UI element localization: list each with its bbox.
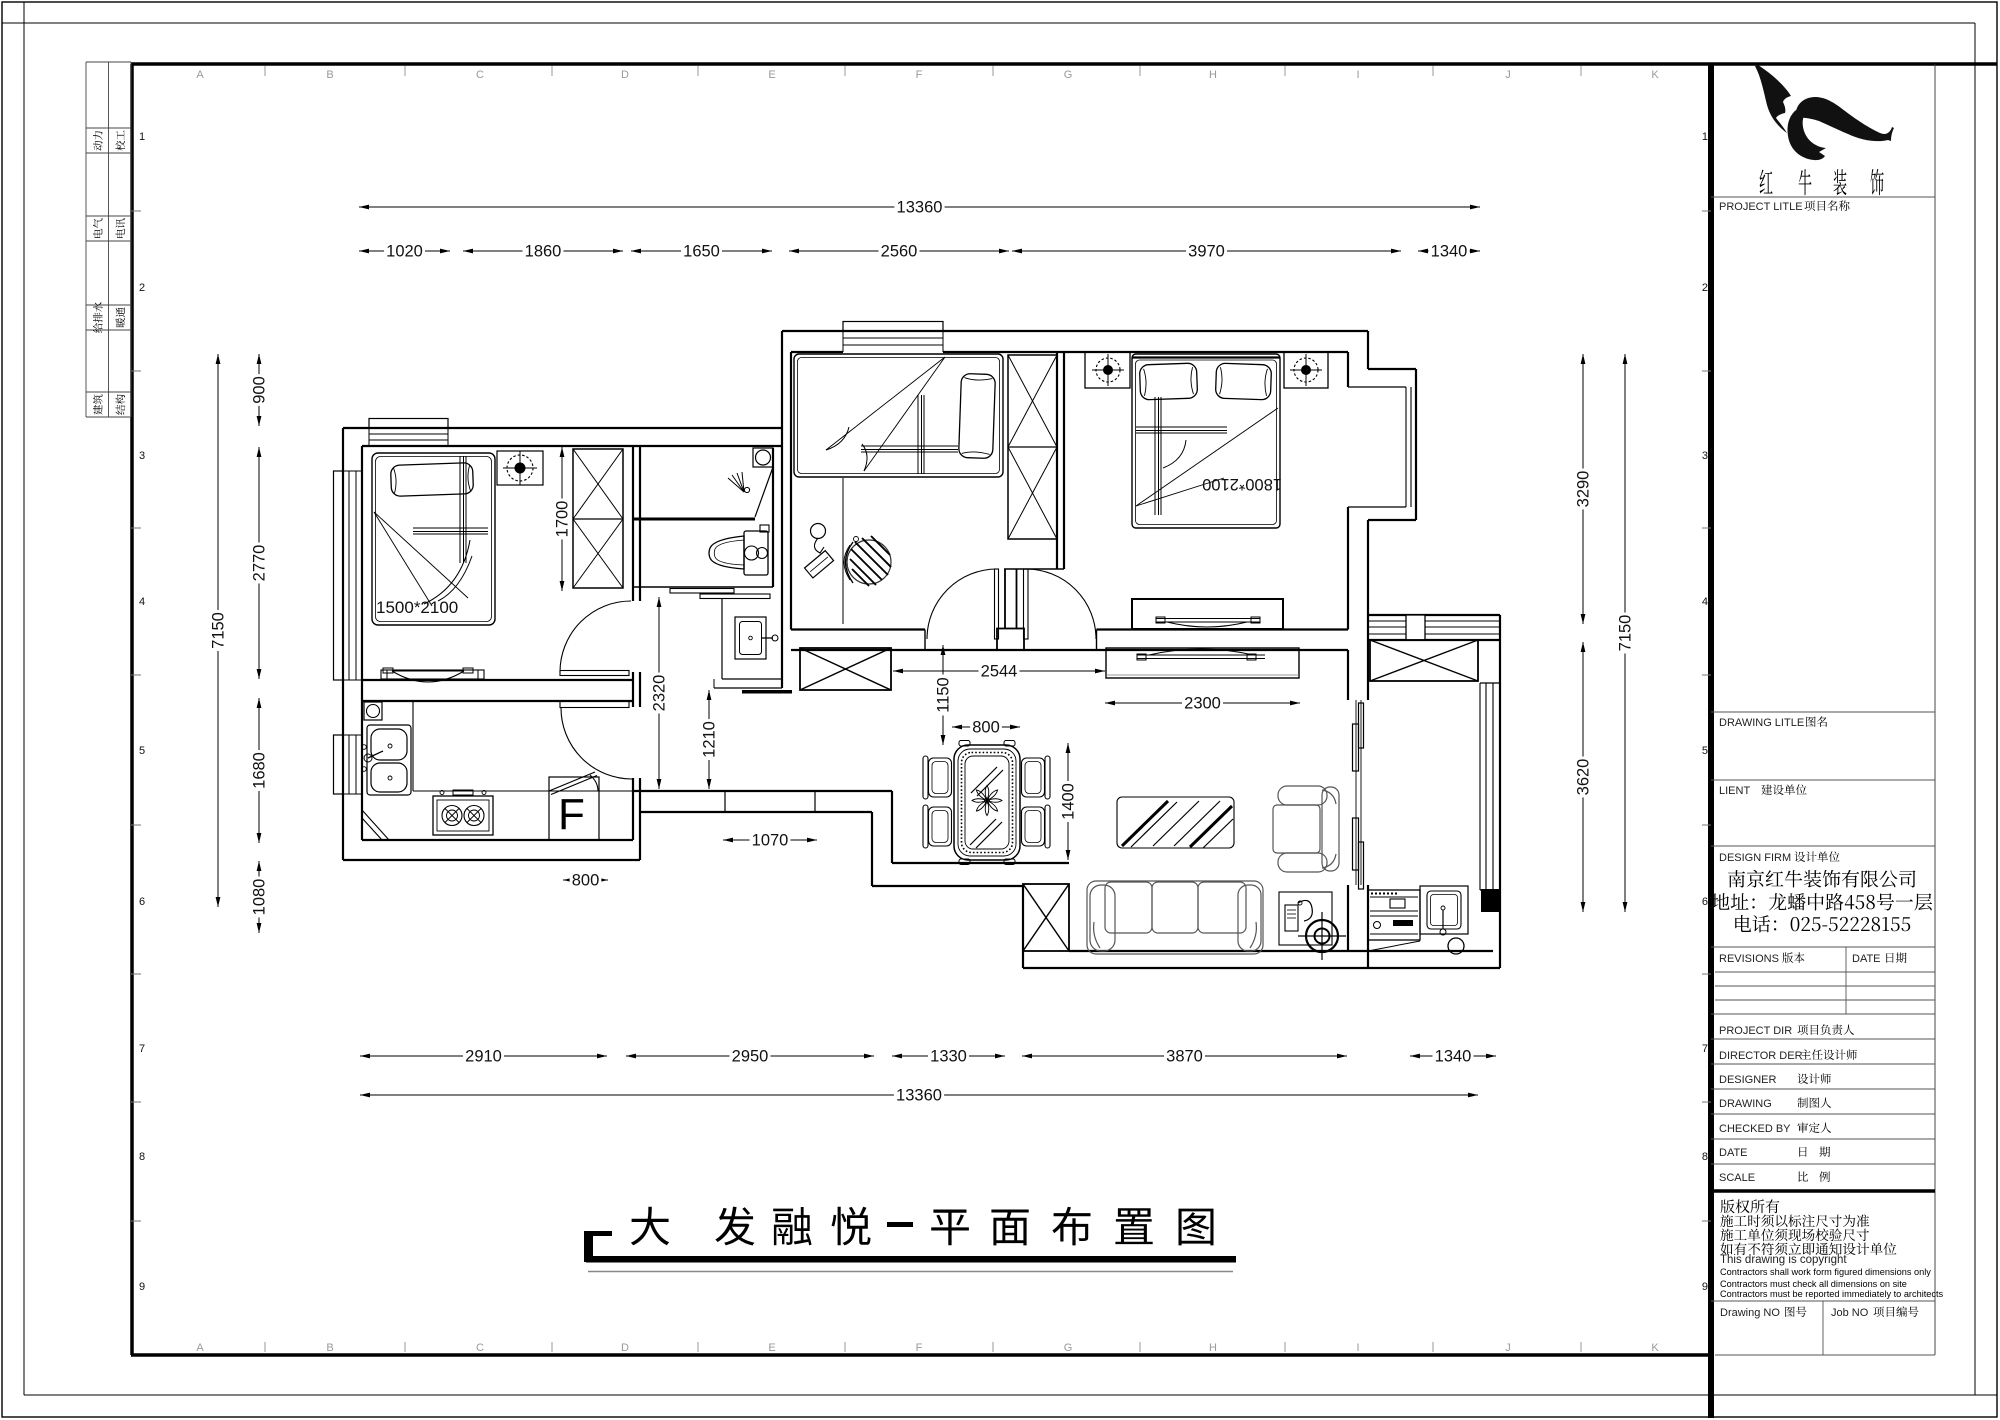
svg-text:6: 6 [139,896,145,908]
svg-text:DRAWING: DRAWING [1719,1098,1772,1110]
svg-text:1700: 1700 [554,501,572,538]
svg-text:1210: 1210 [701,721,719,758]
svg-text:REVISIONS: REVISIONS [1719,953,1779,965]
svg-text:3870: 3870 [1166,1048,1203,1066]
svg-text:A: A [196,69,204,81]
svg-text:B: B [326,1342,333,1354]
svg-text:13360: 13360 [896,1087,942,1105]
svg-text:K: K [1651,1342,1659,1354]
svg-text:9: 9 [1702,1281,1708,1293]
svg-text:9: 9 [139,1281,145,1293]
svg-text:7: 7 [139,1043,145,1055]
svg-text:7: 7 [1702,1043,1708,1055]
svg-text:PROJECT DIR: PROJECT DIR [1719,1025,1792,1037]
svg-text:7150: 7150 [210,612,228,649]
svg-text:2300: 2300 [1184,695,1221,713]
svg-text:8: 8 [1702,1151,1708,1163]
svg-text:2560: 2560 [881,243,918,261]
svg-text:J: J [1505,69,1511,81]
svg-text:F: F [916,69,923,81]
svg-text:1650: 1650 [683,243,720,261]
svg-text:1: 1 [1702,131,1708,143]
svg-text:F: F [558,790,585,839]
svg-text:3290: 3290 [1575,471,1593,508]
svg-text:1400: 1400 [1060,783,1078,820]
svg-text:2: 2 [1702,282,1708,294]
svg-text:DATE: DATE [1719,1147,1748,1159]
svg-text:H: H [1209,69,1217,81]
svg-text:6: 6 [1702,896,1708,908]
svg-text:G: G [1064,1342,1073,1354]
svg-text:G: G [1064,69,1073,81]
svg-text:E: E [768,1342,775,1354]
svg-text:7150: 7150 [1617,615,1635,652]
svg-text:DRAWING LITLE: DRAWING LITLE [1719,717,1804,729]
svg-text:2: 2 [139,282,145,294]
svg-text:A: A [196,1342,204,1354]
svg-text:5: 5 [1702,745,1708,757]
svg-text:3970: 3970 [1188,243,1225,261]
svg-text:Job NO: Job NO [1831,1307,1869,1319]
svg-text:Contractors shall work form fi: Contractors shall work form figured dime… [1720,1267,1931,1277]
svg-text:5: 5 [139,745,145,757]
svg-text:CHECKED BY: CHECKED BY [1719,1123,1791,1135]
svg-text:1: 1 [139,131,145,143]
svg-text:800: 800 [972,719,1000,737]
svg-text:D: D [621,1342,629,1354]
svg-text:3: 3 [139,450,145,462]
svg-text:C: C [476,1342,484,1354]
svg-text:1800*2100: 1800*2100 [1202,475,1282,493]
svg-text:1340: 1340 [1435,1048,1472,1066]
svg-text:4: 4 [139,596,145,608]
svg-text:1500*2100: 1500*2100 [376,598,458,617]
svg-text:LIENT: LIENT [1719,785,1750,797]
svg-text:2770: 2770 [251,545,269,582]
svg-text:1330: 1330 [930,1048,967,1066]
svg-text:F: F [916,1342,923,1354]
svg-text:DESIGN FIRM: DESIGN FIRM [1719,852,1791,864]
svg-text:2544: 2544 [981,663,1018,681]
svg-text:E: E [768,69,775,81]
svg-text:This drawing is copyright: This drawing is copyright [1720,1254,1847,1266]
svg-text:2320: 2320 [651,675,669,712]
svg-text:SCALE: SCALE [1719,1172,1755,1184]
svg-text:4: 4 [1702,596,1708,608]
svg-text:3620: 3620 [1575,759,1593,796]
svg-text:DIRECTOR DER: DIRECTOR DER [1719,1050,1803,1062]
svg-text:1860: 1860 [525,243,562,261]
svg-text:DATE: DATE [1852,953,1881,965]
svg-text:2910: 2910 [465,1048,502,1066]
svg-text:I: I [1356,69,1359,81]
svg-text:H: H [1209,1342,1217,1354]
svg-text:K: K [1651,69,1659,81]
svg-text:8: 8 [139,1151,145,1163]
svg-text:1150: 1150 [935,677,953,712]
svg-text:1340: 1340 [1431,243,1468,261]
svg-text:1020: 1020 [386,243,423,261]
svg-text:Drawing NO: Drawing NO [1720,1307,1780,1319]
svg-text:PROJECT LITLE: PROJECT LITLE [1719,201,1803,213]
svg-text:900: 900 [251,376,269,404]
svg-text:I: I [1356,1342,1359,1354]
svg-text:2950: 2950 [732,1048,769,1066]
svg-text:1080: 1080 [251,879,269,916]
svg-text:B: B [326,69,333,81]
svg-text:Contractors must be reported i: Contractors must be reported immediately… [1720,1289,1944,1299]
svg-text:Contractors must check all dim: Contractors must check all dimensions on… [1720,1279,1907,1289]
svg-text:J: J [1505,1342,1511,1354]
svg-text:1680: 1680 [251,752,269,789]
svg-text:13360: 13360 [897,199,943,217]
svg-text:DESIGNER: DESIGNER [1719,1074,1777,1086]
svg-text:800: 800 [572,872,600,890]
svg-text:C: C [476,69,484,81]
svg-text:3: 3 [1702,450,1708,462]
svg-text:D: D [621,69,629,81]
svg-text:1070: 1070 [752,832,789,850]
